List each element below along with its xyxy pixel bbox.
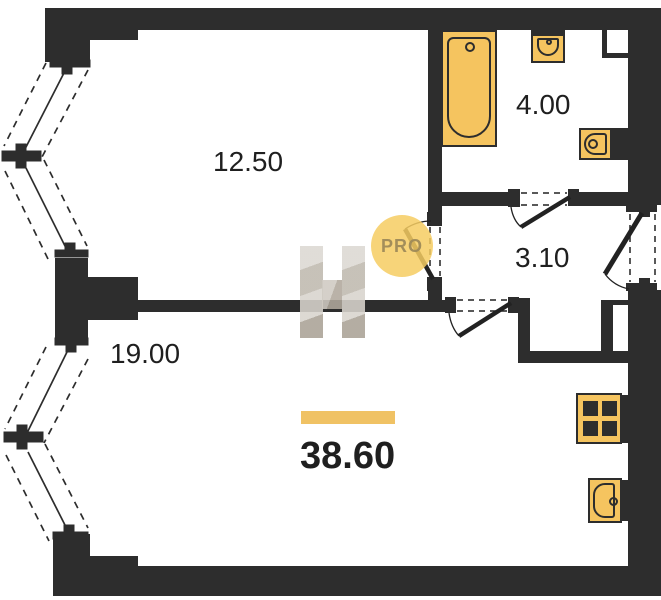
watermark-pro-badge: PRO [371,215,433,277]
bathtub-drain [465,42,475,52]
wall-top-left-pier [45,8,90,62]
watermark-h-cross-bar [322,280,342,309]
wall-duct-left-strip [602,30,607,53]
area-label-bathroom: 4.00 [516,91,571,119]
wall-bottom-thick [90,556,138,596]
wall-bath-bottom-left [442,192,510,206]
watermark-h-right-bar [342,246,365,338]
wall-middle-block [88,277,138,320]
kitchen-sink-icon [588,478,622,523]
wall-top-thick [90,8,138,40]
washbasin-icon [531,30,565,63]
bathtub-basin [447,37,491,138]
floor-plan: 12.50 4.00 3.10 19.00 38.60 PRO [0,0,661,600]
wall-shaft-top [601,300,630,305]
kitchen-sink-drain [609,497,618,506]
total-area-accent-bar [301,411,395,424]
wall-kitchen [518,351,630,363]
bathroom-door [508,189,579,227]
watermark-h-left-bar [300,246,323,338]
wall-room-divider [138,300,447,312]
toilet-drain [588,139,598,149]
stove-burner [602,401,617,416]
washbasin-faucet [546,39,552,45]
stove-burner [583,401,598,416]
bathtub-icon [441,30,497,147]
toilet-icon [579,128,612,160]
bay-window-top [2,60,90,259]
washbasin-wall-strip [531,30,565,36]
stove-icon [576,393,622,444]
area-label-hallway: 3.10 [515,244,570,272]
wall-top-main [138,8,661,30]
wall-bath-left [428,30,442,213]
wall-right-upper [628,30,661,205]
wall-bottom-left-pier [53,534,90,596]
hall-living-door [445,297,519,336]
wall-bath-bottom-right [578,192,630,206]
toilet-tank [612,128,628,160]
wall-shaft-vertical [601,300,613,352]
wall-middle-pier [55,258,88,343]
wall-bottom-main [138,566,661,596]
total-area-label: 38.60 [300,437,395,475]
wall-right-lower [628,290,661,596]
stove-burner [602,421,617,436]
entry-door [605,204,657,291]
stove-burner [583,421,598,436]
area-label-bedroom: 12.50 [213,148,283,176]
wall-hall-door-stub [428,289,442,312]
bay-window-bottom [4,338,88,541]
area-label-living: 19.00 [110,340,180,368]
wall-duct-bottom-strip [602,53,628,58]
